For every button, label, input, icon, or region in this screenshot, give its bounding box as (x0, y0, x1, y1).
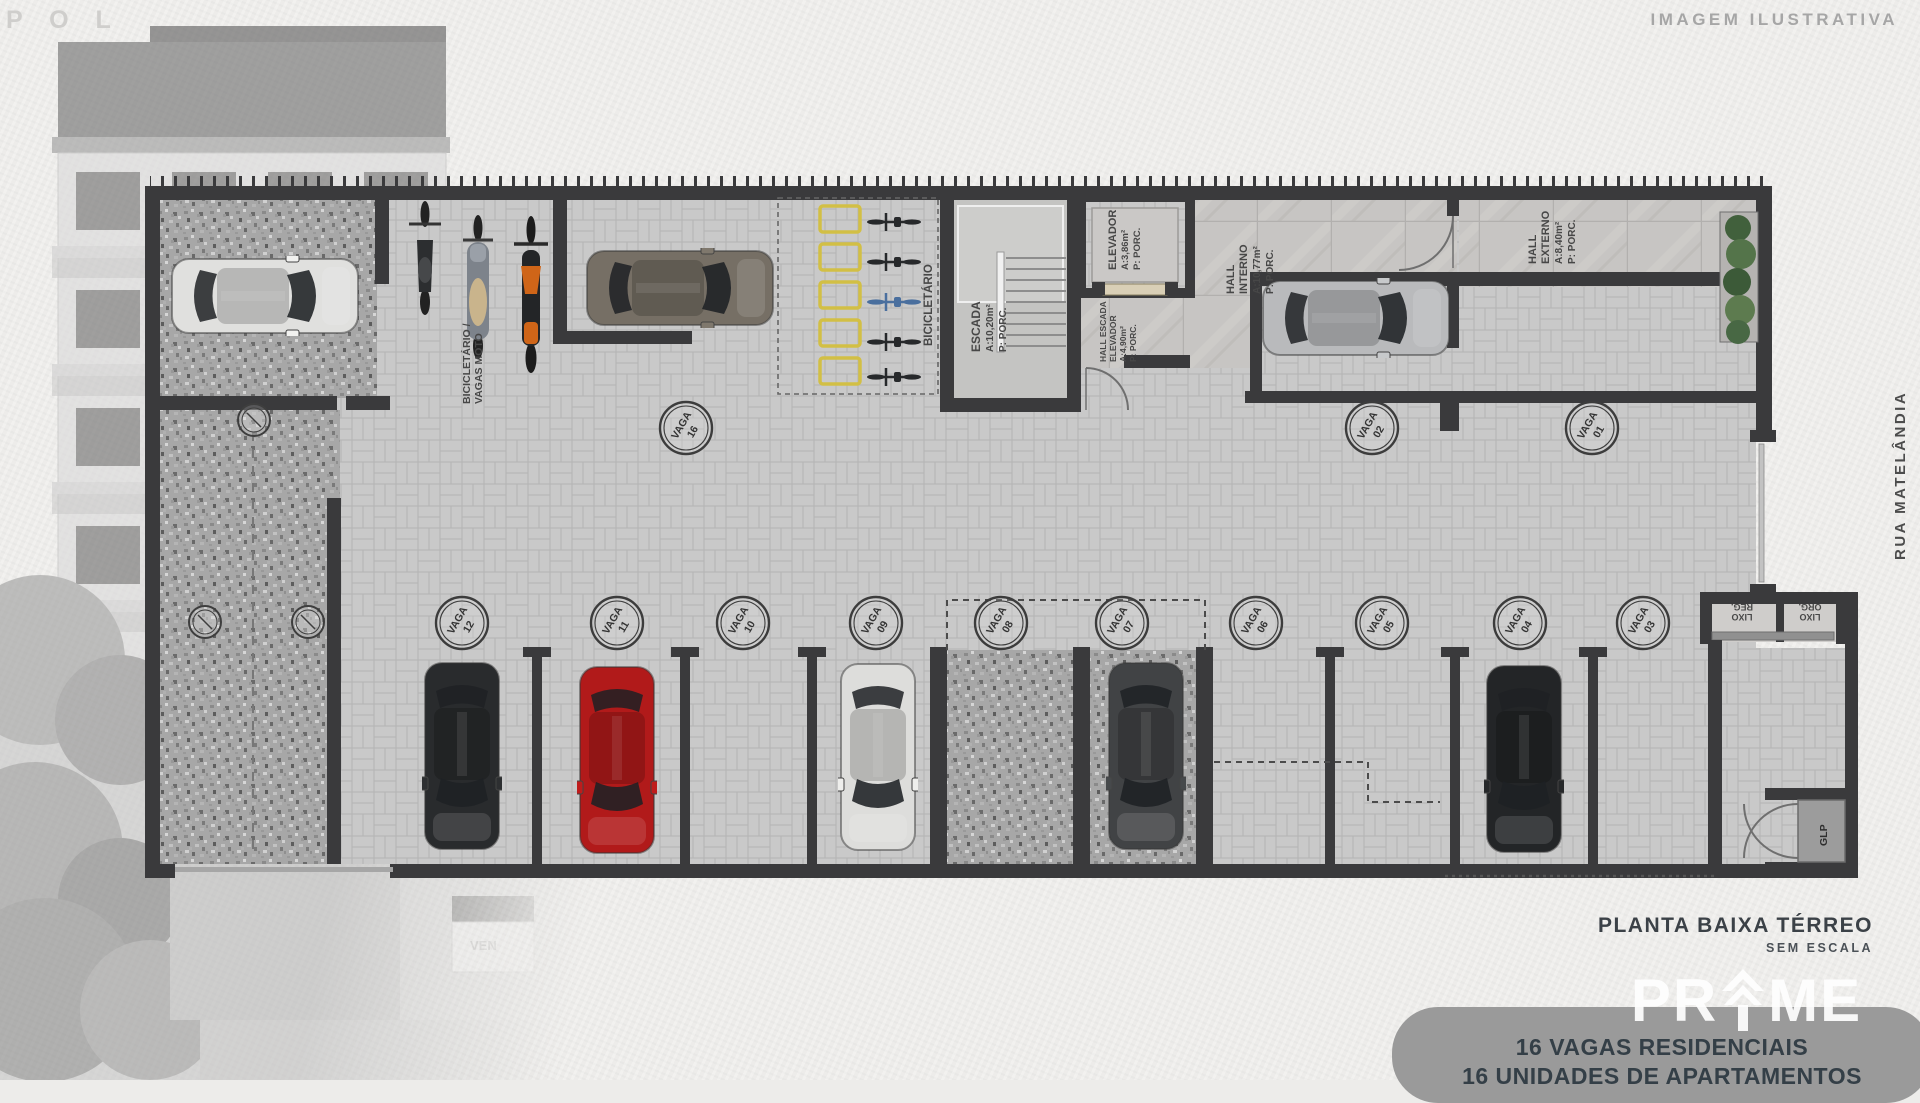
svg-text:GLP: GLP (1818, 824, 1830, 846)
spot-badge-06: VAGA06 (1230, 597, 1282, 649)
planter-plants (1720, 212, 1758, 344)
spot-badge-08: VAGA08 (975, 597, 1027, 649)
svg-text:P: PORC.: P: PORC. (1128, 324, 1138, 362)
gravel-spot-08 (947, 650, 1075, 864)
spot-badge-07: VAGA07 (1096, 597, 1148, 649)
car-spot-04 (1481, 666, 1567, 852)
label-glp: GLP (1818, 824, 1830, 846)
svg-text:HALL: HALL (1527, 234, 1539, 264)
label-lixo-org: LIXO ORG. (1798, 602, 1821, 622)
car-spot-09 (835, 664, 921, 850)
title-block: PLANTA BAIXA TÉRREO SEM ESCALA (1598, 914, 1873, 955)
svg-text:VAGAS MOTO: VAGAS MOTO (473, 333, 485, 404)
spot-badge-02: VAGA02 (1346, 402, 1398, 454)
car-spot-11 (574, 667, 660, 853)
car-spot-07 (1103, 663, 1189, 849)
svg-text:P: PORC.: P: PORC. (1265, 249, 1276, 294)
svg-text:INTERNO: INTERNO (1238, 244, 1250, 294)
spot-badge-16: VAGA16 (660, 402, 712, 454)
svg-text:A:4,90m²: A:4,90m² (1118, 326, 1128, 362)
svg-text:ORG.: ORG. (1798, 602, 1821, 612)
svg-text:A:10,20m²: A:10,20m² (985, 304, 996, 352)
spot-badge-11: VAGA11 (591, 597, 643, 649)
plan-scale-note: SEM ESCALA (1598, 941, 1873, 955)
svg-text:HALL ESCADA: HALL ESCADA (1098, 301, 1108, 362)
label-lixo-reg: LIXO REG. (1731, 602, 1753, 622)
spot-badge-09: VAGA09 (850, 597, 902, 649)
svg-text:A:10,77m²: A:10,77m² (1252, 246, 1263, 294)
car-spot-16 (587, 245, 773, 331)
svg-text:ELEVADOR: ELEVADOR (1107, 210, 1119, 270)
spot-badge-01: VAGA01 (1566, 402, 1618, 454)
svg-text:REG.: REG. (1731, 602, 1753, 612)
spot-badge-03: VAGA03 (1617, 597, 1669, 649)
svg-text:HALL: HALL (1225, 264, 1237, 294)
svg-text:LIXO: LIXO (1799, 612, 1820, 622)
svg-text:ESCADA: ESCADA (969, 301, 983, 352)
svg-text:P: PORC.: P: PORC. (998, 307, 1009, 352)
svg-text:EXTERNO: EXTERNO (1540, 210, 1552, 264)
svg-text:A:8,40m²: A:8,40m² (1554, 221, 1565, 264)
svg-text:A:3,86m²: A:3,86m² (1120, 230, 1131, 270)
stat-unidades: 16 UNIDADES DE APARTAMENTOS (1462, 1062, 1862, 1091)
label-bicicletario: BICICLETÁRIO (922, 264, 935, 346)
prime-logo-right: ME (1768, 971, 1862, 1031)
spot-badge-05: VAGA05 (1356, 597, 1408, 649)
label-bicicletario-moto: BICICLETÁRIO / VAGAS MOTO (460, 323, 485, 404)
svg-text:BICICLETÁRIO: BICICLETÁRIO (922, 264, 935, 346)
car-spot-02 (1263, 275, 1449, 361)
prime-logo-left: PR (1631, 971, 1718, 1031)
spot-badge-12: VAGA12 (436, 597, 488, 649)
prime-logo: PR ME (1604, 962, 1889, 1040)
svg-text:P: PORC.: P: PORC. (1567, 219, 1578, 264)
spot-badge-10: VAGA10 (717, 597, 769, 649)
plan-title: PLANTA BAIXA TÉRREO (1598, 914, 1873, 938)
svg-text:BICICLETÁRIO /: BICICLETÁRIO / (460, 323, 473, 404)
car-white-garage (172, 253, 358, 339)
svg-text:ELEVADOR: ELEVADOR (1108, 315, 1118, 362)
svg-text:LIXO: LIXO (1731, 612, 1752, 622)
car-spot-12 (419, 663, 505, 849)
prime-logo-arrow-icon (1720, 969, 1766, 1033)
label-escada: ESCADA A:10,20m² P: PORC. (969, 301, 1009, 352)
svg-text:P: PORC.: P: PORC. (1132, 228, 1143, 270)
spot-badge-04: VAGA04 (1494, 597, 1546, 649)
